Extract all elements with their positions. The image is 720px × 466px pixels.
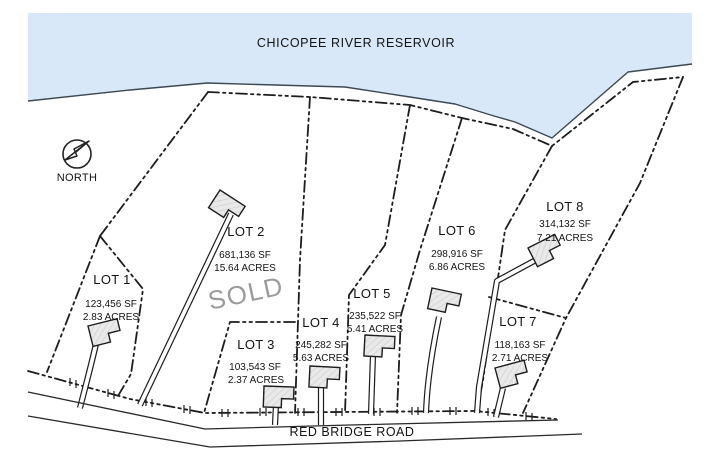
- lot7-house: [495, 360, 529, 388]
- lot7-sf: 118,163 SF: [495, 340, 546, 351]
- lot3-name: LOT 3: [237, 337, 274, 352]
- lot3-house: [263, 386, 294, 408]
- lot5-name: LOT 5: [353, 286, 390, 301]
- lot1-label-group: LOT 1 123,456 SF 2.83 ACRES: [83, 272, 139, 323]
- north-label: NORTH: [57, 172, 97, 184]
- reservoir-label: CHICOPEE RIVER RESERVOIR: [257, 36, 455, 50]
- lot2-sold-badge: SOLD: [205, 270, 286, 315]
- lot3-acres: 2.37 ACRES: [228, 375, 284, 386]
- lot7-name: LOT 7: [499, 314, 536, 329]
- north-arrow-icon: [63, 140, 91, 168]
- lot5-house: [364, 335, 395, 358]
- lot4-house: [309, 366, 340, 389]
- lot6-acres: 6.86 ACRES: [429, 262, 485, 273]
- lot4-name: LOT 4: [302, 315, 339, 330]
- plot-plan-drawing: CHICOPEE RIVER RESERVOIR: [0, 0, 720, 466]
- lot8-name: LOT 8: [546, 199, 583, 214]
- lot6-house: [428, 288, 462, 315]
- lot5-label-group: LOT 5 235,522 SF 5.41 ACRES: [347, 286, 403, 335]
- lot8-sf: 314,132 SF: [539, 219, 591, 230]
- lot8-label-group: LOT 8 314,132 SF 7.21 ACRES: [537, 199, 593, 244]
- road-name-label: RED BRIDGE ROAD: [290, 425, 415, 439]
- lot2-sf: 681,136 SF: [219, 250, 271, 261]
- reservoir-water: [28, 13, 692, 138]
- lot1-driveway: [80, 344, 96, 408]
- lot1-sf: 123,456 SF: [85, 299, 137, 310]
- lot5-driveway: [371, 354, 373, 414]
- lot6-driveway: [426, 317, 439, 413]
- plot-plan-map: CHICOPEE RIVER RESERVOIR: [0, 0, 720, 466]
- lot4-sf: 245,282 SF: [295, 340, 347, 351]
- lot3-label-group: LOT 3 103,543 SF 2.37 ACRES: [228, 337, 284, 386]
- lot6-name: LOT 6: [438, 223, 475, 238]
- boundary-lot4-lot5: [345, 105, 410, 413]
- lot6-label-group: LOT 6 298,916 SF 6.86 ACRES: [429, 223, 485, 273]
- lot1-acres: 2.83 ACRES: [83, 312, 139, 323]
- lot4-label-group: LOT 4 245,282 SF 5.63 ACRES: [293, 315, 349, 364]
- lot2-name: LOT 2: [227, 224, 264, 239]
- lot5-acres: 5.41 ACRES: [347, 324, 403, 335]
- lot6-sf: 298,916 SF: [431, 249, 483, 260]
- boundary-lot1-lot2: [100, 92, 208, 236]
- lot1-name: LOT 1: [93, 272, 130, 287]
- lot5-sf: 235,522 SF: [349, 311, 401, 322]
- lot8-acres: 7.21 ACRES: [537, 233, 593, 244]
- lot3-sf: 103,543 SF: [229, 362, 281, 373]
- boundary-lot2-lot4: [295, 97, 310, 413]
- lot4-acres: 5.63 ACRES: [293, 353, 349, 364]
- lot7-label-group: LOT 7 118,163 SF 2.71 ACRES: [492, 314, 548, 364]
- lot7-acres: 2.71 ACRES: [492, 353, 548, 364]
- lot7-driveway: [496, 388, 503, 417]
